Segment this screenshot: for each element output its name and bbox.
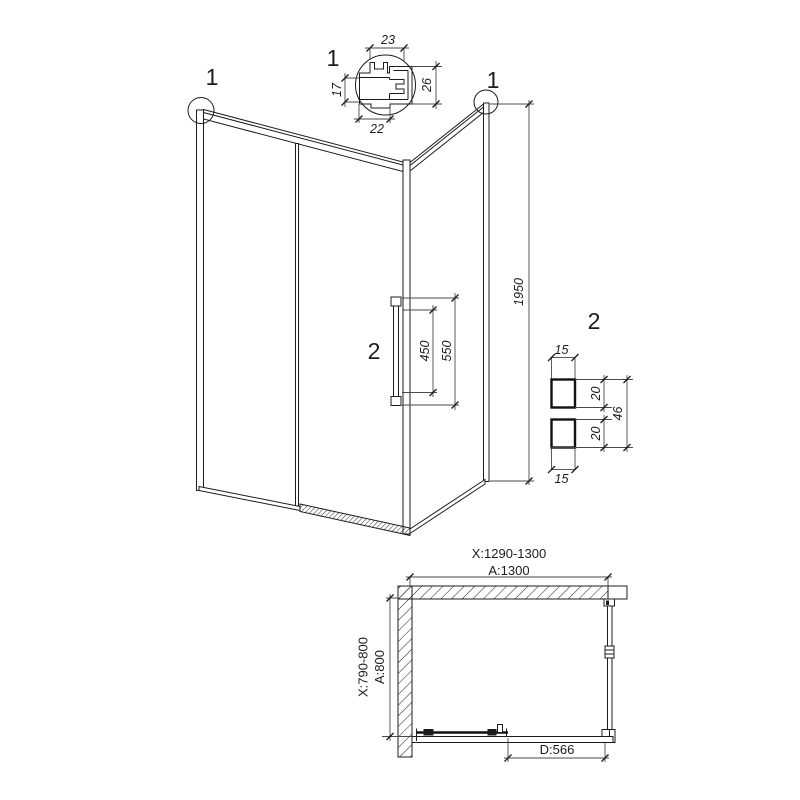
detail-1-dim-left: 17: [330, 73, 359, 107]
right-wall-post: [484, 103, 490, 482]
dim-46: 46: [611, 407, 625, 421]
handle-top-cap: [391, 297, 401, 306]
elevation-view: 1 1 2 1950 450 550: [188, 64, 534, 536]
handle-bar: [394, 306, 399, 397]
detail-1-dim-top: 23: [365, 33, 409, 62]
dim-17: 17: [330, 82, 344, 97]
dim-15-bottom: 15: [555, 472, 569, 486]
dim-door-width: D:566: [540, 742, 575, 757]
dim-22: 22: [369, 122, 384, 136]
side-panel-plan: [608, 599, 613, 737]
top-rail-profile-outline: [360, 63, 413, 109]
dim-15-top: 15: [555, 343, 569, 357]
elevation-callout-right: 1: [487, 67, 500, 93]
left-wall-hatch: [398, 586, 412, 757]
detail-1-view: 1 23 17 26 22: [327, 33, 442, 136]
bottom-side-rail: [410, 480, 485, 534]
dim-23: 23: [380, 33, 395, 47]
width-dimension: X:1290-1300 A:1300: [406, 546, 612, 586]
top-side-rail-inner-line: [410, 107, 484, 166]
dim-width-nominal: A:1300: [488, 563, 529, 578]
top-side-rail: [410, 104, 484, 171]
dim-width-range: X:1290-1300: [472, 546, 546, 561]
door-callout: 2: [368, 338, 381, 364]
top-front-rail-inner-line: [204, 113, 404, 166]
wall-bracket-mark: [606, 601, 609, 606]
detail-1-dim-bottom: 22: [354, 104, 395, 136]
dim-450: 450: [418, 341, 432, 362]
dim-1950: 1950: [512, 278, 526, 306]
bottom-front-rail: [199, 487, 300, 511]
side-panel-wall-bracket: [604, 599, 615, 606]
technical-drawing-canvas: 1 23 17 26 22: [0, 0, 800, 800]
detail-1-callout: 1: [327, 45, 340, 71]
shower-enclosure-drawing: 1 23 17 26 22: [0, 0, 800, 800]
roller-bracket-right: [488, 729, 497, 736]
dim-20-upper: 20: [589, 387, 603, 402]
dim-depth-nominal: A:800: [372, 650, 387, 684]
dim-depth-range: X:790-800: [356, 637, 371, 697]
lower-magnet-profile: [552, 420, 576, 448]
top-wall-hatch: [398, 586, 608, 599]
dim-26: 26: [420, 78, 434, 93]
side-panel-connector: [605, 646, 614, 658]
bottom-door-track-hatched: [300, 504, 410, 536]
upper-magnet-profile: [552, 380, 576, 408]
dim-20-lower: 20: [589, 427, 603, 442]
fixed-panel-divider: [296, 144, 299, 507]
dim-550: 550: [440, 341, 454, 362]
elevation-callout-left: 1: [206, 64, 219, 90]
handle-bottom-cap: [391, 397, 401, 406]
height-dimension: 1950: [490, 100, 534, 485]
corner-post: [403, 160, 410, 534]
door-handle: [391, 297, 401, 406]
door-handle-plan: [498, 725, 503, 733]
bottom-track-plan: [412, 737, 613, 743]
roller-bracket-left: [424, 729, 434, 736]
plan-view: X:1290-1300 A:1300 X:790-800 A:800 D:566: [356, 546, 628, 762]
detail-1-dim-right: 26: [412, 61, 442, 109]
left-wall-post: [197, 110, 204, 491]
detail-2-view: 2 15 20 46 20 15: [548, 308, 633, 486]
detail-2-callout: 2: [588, 308, 601, 334]
